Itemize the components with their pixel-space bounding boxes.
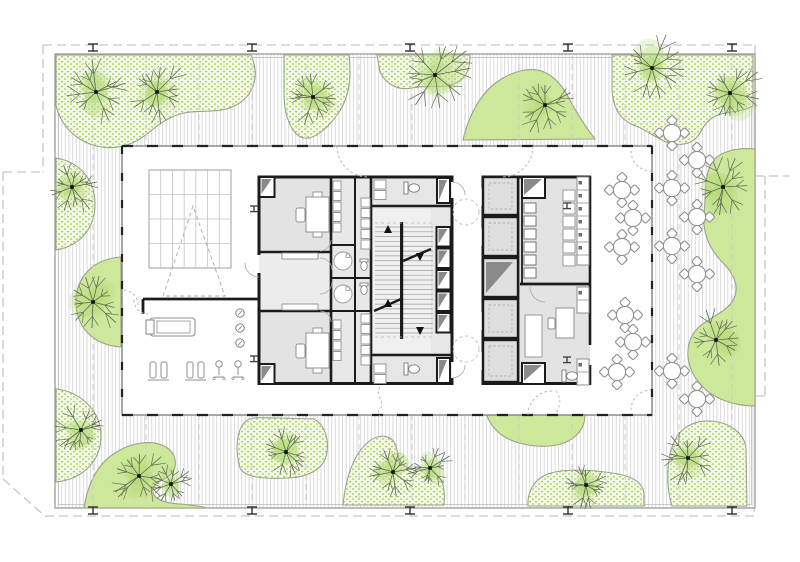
cafe-table-top xyxy=(663,124,680,141)
exercise-chair-seat xyxy=(235,361,241,367)
cabinet xyxy=(374,375,386,384)
cabinet xyxy=(361,335,370,344)
appliance-dot xyxy=(579,291,583,295)
lounge-bench-cushion xyxy=(157,321,190,333)
tree-canopy-blob xyxy=(309,90,334,115)
riser-cabinet xyxy=(524,203,536,213)
cabinet xyxy=(333,202,341,211)
cabinet xyxy=(333,352,341,361)
wc-bowl-small xyxy=(361,262,367,271)
cabinet xyxy=(361,209,370,218)
wc-bowl xyxy=(567,372,578,380)
cabinet xyxy=(333,341,341,350)
tree-canopy-blob xyxy=(87,71,106,90)
tree-trunk-dot xyxy=(686,456,690,460)
desk-return xyxy=(313,368,322,373)
cabinet xyxy=(361,230,370,239)
cafe-table-top xyxy=(688,208,705,225)
desk-chair xyxy=(296,344,305,358)
cafe-table-top xyxy=(616,306,633,323)
tree-trunk-dot xyxy=(169,482,173,486)
cabinet xyxy=(361,356,370,365)
cabinet xyxy=(525,315,542,357)
appliance-dot xyxy=(579,233,583,237)
shower-drain xyxy=(346,254,350,258)
tree-trunk-dot xyxy=(137,474,141,478)
cafe-table-top xyxy=(608,363,625,380)
cafe-table-top xyxy=(688,390,705,407)
cabinet xyxy=(563,242,575,253)
desk-return xyxy=(313,328,322,333)
tree-trunk-dot xyxy=(70,185,74,189)
tree-trunk-dot xyxy=(721,185,725,189)
gym-machine-post xyxy=(161,362,167,378)
tree-trunk-dot xyxy=(650,66,654,70)
shelf xyxy=(282,304,318,310)
cafe-table-top xyxy=(688,151,705,168)
cafe-table-top xyxy=(663,362,680,379)
floor-plan-svg xyxy=(0,0,800,562)
tree-canopy-blob xyxy=(429,53,465,89)
desk-return xyxy=(313,232,322,237)
tree-canopy-blob xyxy=(523,90,550,117)
desk-chair xyxy=(296,208,305,222)
appliance-dot xyxy=(579,207,583,211)
tree-trunk-dot xyxy=(433,73,437,77)
shower-drain xyxy=(346,287,350,291)
cabinet xyxy=(374,180,386,189)
cabinet xyxy=(333,181,341,190)
chair xyxy=(548,318,555,329)
tree-trunk-dot xyxy=(428,466,432,470)
work-table xyxy=(556,308,574,338)
tree-trunk-dot xyxy=(543,103,547,107)
appliance-dot xyxy=(579,181,583,185)
cabinet xyxy=(563,216,575,227)
cabinet xyxy=(374,191,386,200)
gym-machine-post xyxy=(198,362,204,378)
wc-bowl xyxy=(409,184,420,192)
wc-tank xyxy=(404,182,408,194)
riser-cabinet xyxy=(524,255,536,265)
tree-trunk-dot xyxy=(391,470,395,474)
cafe-table-top xyxy=(613,238,630,255)
wc-tank xyxy=(404,363,408,375)
cabinet xyxy=(563,190,575,201)
tree-trunk-dot xyxy=(79,428,83,432)
exercise-chair-seat xyxy=(216,361,222,367)
gym-machine-post xyxy=(187,362,193,378)
cabinet xyxy=(361,325,370,334)
tree-trunk-dot xyxy=(91,300,95,304)
tree-trunk-dot xyxy=(714,338,718,342)
cabinet xyxy=(563,229,575,240)
appliance-dot xyxy=(579,246,583,250)
riser-cabinet xyxy=(524,229,536,239)
tree-trunk-dot xyxy=(584,483,588,487)
bench-end-table xyxy=(146,320,154,334)
riser-cabinet xyxy=(524,216,536,226)
cabinet xyxy=(563,255,575,266)
cabinet xyxy=(333,192,341,201)
cabinet xyxy=(361,219,370,228)
riser-cabinet xyxy=(524,242,536,252)
property-dashed-line xyxy=(3,479,46,517)
cabinet xyxy=(374,364,386,373)
cabinet xyxy=(361,240,370,249)
wc-tank xyxy=(562,370,566,382)
cabinet xyxy=(333,331,341,340)
desk xyxy=(306,197,329,232)
cabinet xyxy=(361,198,370,207)
cafe-table-top xyxy=(688,265,705,282)
room-floor xyxy=(259,252,331,311)
tree-trunk-dot xyxy=(284,450,288,454)
desk xyxy=(306,333,329,368)
cafe-table-top xyxy=(663,237,680,254)
stair-stringer xyxy=(400,222,403,339)
gym-machine-post xyxy=(150,362,156,378)
cafe-table-top xyxy=(613,181,630,198)
tree-branch xyxy=(139,454,140,476)
cabinet xyxy=(361,314,370,323)
shelf xyxy=(282,253,318,259)
desk-return xyxy=(313,192,322,197)
tree-trunk-dot xyxy=(728,91,732,95)
cabinet xyxy=(333,320,341,329)
wc-bowl-small xyxy=(361,286,367,295)
cabinet xyxy=(333,213,341,222)
cabinet xyxy=(361,346,370,355)
appliance-dot xyxy=(579,194,583,198)
tree-trunk-dot xyxy=(94,90,98,94)
wc-bowl xyxy=(409,365,420,373)
riser-cabinet xyxy=(524,268,536,278)
tree-trunk-dot xyxy=(155,90,159,94)
cafe-table-top xyxy=(624,333,641,350)
tree-trunk-dot xyxy=(311,95,315,99)
cafe-table-top xyxy=(624,209,641,226)
appliance-dot xyxy=(579,363,583,367)
cabinet xyxy=(333,223,341,232)
floor-plan xyxy=(0,0,800,562)
appliance-dot xyxy=(579,220,583,224)
cafe-table-top xyxy=(663,179,680,196)
